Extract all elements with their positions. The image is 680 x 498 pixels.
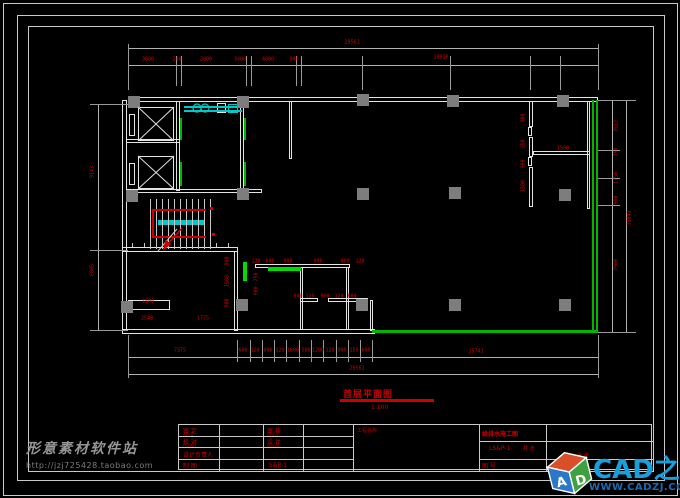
wall — [122, 100, 127, 330]
pipe-line-green — [180, 162, 182, 186]
stair-tread — [156, 199, 157, 249]
dimension-line — [128, 357, 598, 358]
structural-column — [236, 299, 248, 311]
dim-label: 900 — [283, 260, 292, 265]
pipe-line-green — [592, 100, 594, 332]
wall — [529, 101, 533, 127]
dim-label: 120 — [305, 295, 314, 300]
wall-hatch-tick — [132, 243, 133, 247]
wall — [138, 156, 174, 189]
structural-column — [128, 96, 140, 108]
wall-hatch-tick — [144, 243, 145, 247]
dim-label: 900 — [615, 195, 620, 204]
wall — [529, 137, 533, 157]
tb-project-label: 工程名称 — [357, 427, 377, 434]
watermark-site-name: 形意素材软件站 — [26, 438, 138, 458]
dim-label: 120 — [325, 349, 334, 354]
pipe-line-green — [372, 330, 598, 333]
dim-label: 29561 — [344, 41, 359, 46]
wall-hatch-tick — [228, 243, 229, 247]
tb-proof-sub: PROOF — [183, 443, 197, 448]
dim-label: 6805 — [91, 264, 96, 276]
dim-label: 240 — [172, 58, 181, 63]
dimension-line — [98, 104, 99, 330]
dim-label: 1680 — [287, 349, 299, 354]
wall — [533, 151, 590, 155]
dim-label: 7375 — [174, 349, 186, 354]
wall-hatch-tick — [180, 243, 181, 247]
stair-handrail — [152, 209, 206, 211]
dim-label: 900 — [313, 260, 322, 265]
structural-column — [557, 95, 569, 107]
cad-drawing-canvas: 2956136002402800340040009001892073756001… — [0, 0, 680, 498]
tb-drawing-no: S&P-1 — [269, 462, 287, 469]
dim-label: 900 — [337, 349, 346, 354]
dim-label: 2800 — [200, 58, 212, 63]
tb-pages-note-1: 共 张 — [523, 445, 535, 452]
dim-label: 1500 — [226, 275, 231, 287]
structural-column — [447, 95, 459, 107]
structural-column — [559, 299, 571, 311]
pipe-line-green — [244, 118, 246, 140]
structural-column — [126, 190, 138, 202]
wall-hatch-tick — [192, 243, 193, 247]
dim-label: 3512 — [615, 120, 620, 132]
wall — [529, 167, 533, 207]
structural-column — [559, 189, 571, 201]
extension-line — [299, 340, 300, 362]
extension-line — [372, 340, 373, 362]
dim-label: 900 — [255, 286, 260, 295]
title-block: 审 定 APPD. 审 核 CHKD. 校 对 PROOF 设 计 DSGN. … — [178, 424, 652, 470]
dim-label: 1775 — [197, 317, 209, 322]
pipe-line-green — [244, 162, 246, 186]
stair-tread — [162, 199, 163, 249]
dim-label: 2540 — [141, 317, 153, 322]
tb-project-name: 给排水施工图 — [482, 429, 518, 438]
dim-label: 4000 — [262, 58, 274, 63]
tb-sheet-label: 图 号 — [482, 461, 496, 470]
wall — [587, 101, 590, 209]
drawing-title-underline — [340, 399, 434, 402]
wall-hatch-tick — [204, 243, 205, 247]
dim-label: 600 — [347, 295, 356, 300]
dim-label: 1200 — [312, 349, 324, 354]
structural-column — [357, 188, 369, 200]
dim-label: 120 — [334, 295, 343, 300]
dim-label: 600 — [340, 260, 349, 265]
dimension-line — [128, 65, 598, 66]
dim-label: 120 — [250, 349, 259, 354]
stair-tread — [174, 199, 175, 249]
stair-handrail — [152, 236, 206, 238]
cadzj-brand-text: CAD之家 — [593, 449, 680, 486]
drawing-scale: 1:100 — [371, 404, 388, 411]
dim-label: 7900 — [615, 259, 620, 271]
stair-tread — [150, 199, 151, 249]
dim-label: 9143 — [91, 166, 96, 178]
structural-column — [237, 96, 249, 108]
dim-label: 600 — [293, 295, 302, 300]
extension-line — [598, 100, 636, 101]
dim-label: 1500 — [522, 180, 527, 192]
dim-label: 900 — [226, 256, 231, 265]
stair-handrail — [152, 209, 154, 238]
structural-column — [357, 94, 369, 106]
dim-label: 150 — [522, 139, 527, 148]
stair-tread — [168, 199, 169, 249]
dimension-line — [128, 374, 598, 375]
dim-label: 600 — [238, 349, 247, 354]
structural-column — [449, 299, 461, 311]
dim-label: 900 — [522, 113, 527, 122]
extension-line — [128, 335, 129, 378]
dim-label: 600 — [361, 349, 370, 354]
dim-label: 120 — [251, 260, 260, 265]
dim-label: 1500 — [142, 300, 154, 305]
stair-handrail — [210, 207, 213, 210]
extension-line — [90, 330, 128, 331]
extension-line — [598, 332, 636, 333]
wall — [528, 127, 532, 136]
wall — [129, 114, 135, 136]
stair-tread — [192, 199, 193, 249]
extension-line — [128, 44, 129, 90]
pipe-line-green — [268, 267, 301, 271]
dim-label: 3400 — [234, 58, 246, 63]
stair-tread — [180, 199, 181, 249]
wall-hatch-tick — [216, 243, 217, 247]
dim-label: 29561 — [349, 367, 364, 372]
tb-design-sub: DSGN. — [267, 443, 280, 448]
structural-column — [121, 301, 133, 313]
dim-label: 18920 — [433, 56, 448, 61]
tb-sheet-no: LS&P-1 — [489, 445, 510, 452]
dimension-line — [128, 48, 598, 49]
dim-label: 120 — [355, 260, 364, 265]
extension-line — [90, 250, 128, 251]
extension-line — [530, 56, 531, 90]
structural-column — [449, 187, 461, 199]
dim-label: 1750 — [615, 172, 620, 184]
wall — [370, 300, 373, 331]
extension-line — [90, 104, 128, 105]
pipe-line-green — [180, 118, 182, 140]
stair-tread — [198, 199, 199, 249]
wall-hatch-tick — [168, 243, 169, 247]
stair-handrail — [212, 233, 215, 236]
tb-draft-label: 制 图 — [183, 461, 197, 470]
tb-pages-note-2: 第 张 — [577, 452, 589, 459]
dim-label: 16043 — [628, 210, 633, 225]
dim-label: 1500 — [557, 147, 569, 152]
cadzj-site-url: WWW.CADZJ.COM — [589, 482, 680, 493]
extension-line — [246, 56, 247, 86]
dim-label: 3600 — [142, 58, 154, 63]
structural-column — [356, 299, 368, 311]
dim-label: 600 — [265, 260, 274, 265]
dim-label: 15743 — [468, 350, 483, 355]
dim-label: 500 — [301, 349, 310, 354]
dim-label: 120 — [275, 349, 284, 354]
dim-label: 900 — [320, 295, 329, 300]
dim-label: 750 — [255, 272, 260, 281]
extension-line — [598, 205, 620, 206]
wall — [289, 101, 292, 159]
dim-label: 900 — [226, 298, 231, 307]
extension-line — [301, 56, 302, 86]
wall — [129, 163, 135, 185]
extension-line — [598, 335, 599, 378]
extension-line — [560, 56, 561, 90]
extension-line — [450, 56, 451, 90]
dim-label: 900 — [289, 58, 298, 63]
wall — [528, 157, 532, 166]
pipe-line-green — [596, 100, 598, 332]
stair-tread — [186, 199, 187, 249]
wall — [138, 107, 174, 141]
stair-tread — [204, 199, 205, 249]
dim-label: 750 — [615, 147, 620, 156]
structural-column — [237, 188, 249, 200]
extension-line — [362, 56, 363, 90]
dimension-line — [612, 100, 613, 332]
wall — [122, 329, 375, 334]
tb-chief-label: 设计负责人 — [183, 450, 213, 459]
dim-label: 900 — [522, 159, 527, 168]
extension-line — [598, 44, 599, 90]
dim-label: 900 — [263, 349, 272, 354]
extension-line — [251, 56, 252, 86]
watermark-url: http://jzj725428.taobao.com — [26, 461, 153, 470]
wall — [234, 251, 238, 331]
dim-label: 150 — [349, 349, 358, 354]
wall-hatch-tick — [156, 243, 157, 247]
pipe-line-green — [243, 262, 247, 281]
